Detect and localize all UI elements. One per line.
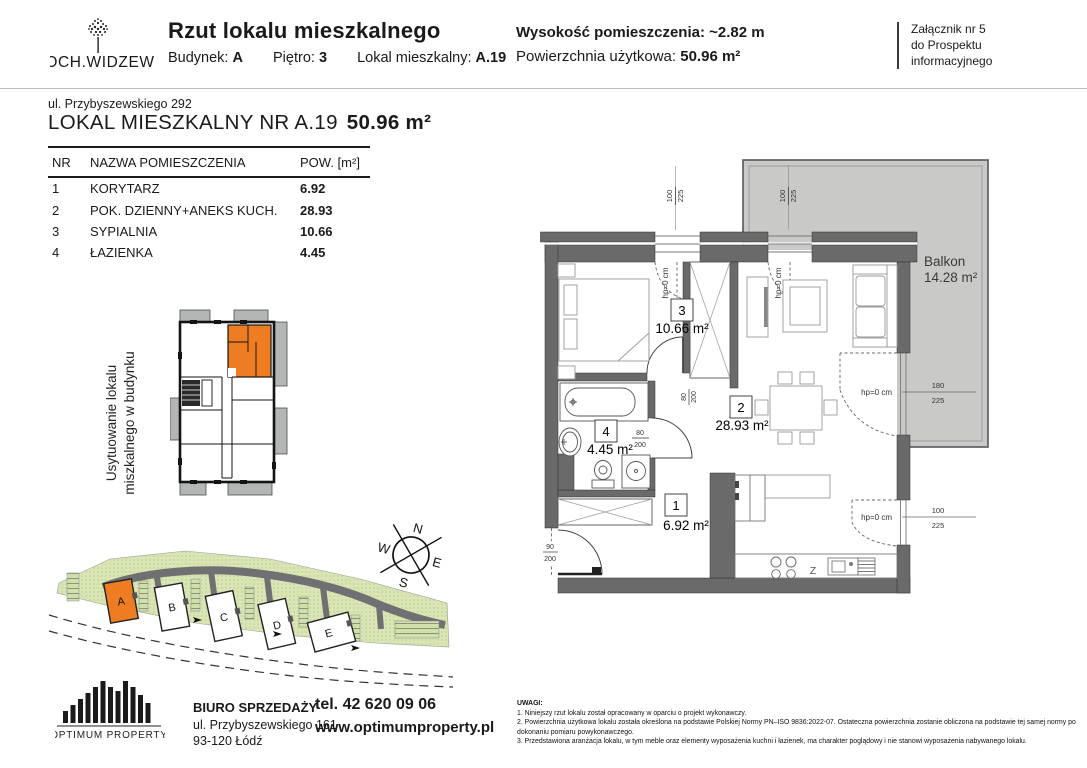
agency-brand: OPTIMUM PROPERTY [55, 730, 165, 741]
svg-text:100: 100 [932, 506, 945, 515]
wardrobe-bedroom [690, 262, 730, 378]
svg-text:200: 200 [634, 442, 646, 449]
balcony-area: 14.28 m² [924, 270, 978, 285]
svg-text:225: 225 [932, 521, 945, 530]
room-3-area: 10.66 m² [655, 321, 709, 336]
note-item: 1. Niniejszy rzut lokalu został opracowa… [517, 709, 1079, 719]
unit-value: A.19 [476, 50, 507, 66]
room-3-number: 3 [678, 303, 685, 318]
room-4-number: 4 [602, 424, 609, 439]
table-row: 3 SYPIALNIA 10.66 [48, 221, 370, 242]
unit-label: Lokal mieszkalny: [357, 50, 471, 66]
table-row: 2 POK. DZIENNY+ANEKS KUCH. 28.93 [48, 199, 370, 220]
agency-logo: OPTIMUM PROPERTY [55, 678, 165, 742]
svg-text:W: W [376, 539, 392, 557]
table-row: 1 KORYTARZ 6.92 [48, 178, 370, 199]
wardrobe-hall [558, 499, 652, 525]
notes-title: UWAGI: [517, 699, 1079, 709]
floor-value: 3 [319, 50, 327, 66]
table-header: NR NAZWA POMIESZCZENIA POW. [m²] [48, 146, 370, 178]
dim-window-right: 100 225 [932, 506, 945, 530]
unit-meta: Budynek: A Piętro: 3 Lokal mieszkalny: A… [168, 50, 506, 66]
notes-block: UWAGI: 1. Niniejszy rzut lokalu został o… [517, 699, 1079, 747]
hp-label: hp=0 cm [661, 267, 670, 298]
svg-text:200: 200 [691, 391, 698, 403]
page-title: Rzut lokalu mieszkalnego [168, 18, 441, 44]
svg-text:180: 180 [932, 381, 945, 390]
building-bars-icon [63, 681, 151, 723]
kitchen-sink-label: Z [810, 565, 817, 577]
svg-text:225: 225 [932, 396, 945, 405]
svg-text:200: 200 [544, 556, 556, 563]
svg-text:80: 80 [636, 430, 644, 437]
note-item: 3. Przedstawiona aranżacja lokalu, w tym… [517, 737, 1079, 747]
site-map: A B C D E [45, 523, 457, 691]
elevator [202, 380, 212, 406]
usable-area: Powierzchnia użytkowa: 50.96 m² [516, 48, 740, 65]
tree-icon [88, 18, 108, 53]
svg-text:100: 100 [778, 190, 787, 203]
hp-label: hp=0 cm [774, 267, 783, 298]
hp-label: hp=0 cm [861, 513, 892, 522]
rooms-table: NR NAZWA POMIESZCZENIA POW. [m²] 1 KORYT… [48, 146, 370, 264]
svg-text:E: E [431, 554, 444, 571]
room-2-area: 28.93 m² [715, 418, 769, 433]
room-4-area: 4.45 m² [587, 442, 633, 457]
document-page: OCH.WIDZEW Rzut lokalu mieszkalnego Budy… [0, 0, 1087, 768]
entry-door-handle [592, 567, 601, 575]
floor-plan: Z 3 10.66 m² 2 28.93 m² 4 4.45 m² 1 6.92… [540, 150, 1040, 620]
svg-text:90: 90 [546, 544, 554, 551]
svg-text:225: 225 [789, 190, 798, 203]
dim-window-top-1: 100 225 [665, 187, 685, 205]
building-value: A [233, 50, 243, 66]
attachment-note: Załącznik nr 5 do Prospektu informacyjne… [897, 22, 992, 69]
unit-title: LOKAL MIESZKALNY NR A.1950.96 m² [48, 111, 431, 135]
logo-text: OCH.WIDZEW [50, 54, 154, 71]
svg-text:S: S [397, 574, 410, 591]
room-2-number: 2 [737, 400, 744, 415]
window-right-frame [901, 500, 907, 545]
website-link[interactable]: www.optimumproperty.pl [315, 719, 494, 736]
balcony-name: Balkon [924, 254, 965, 269]
window-top-1 [655, 236, 700, 252]
svg-text:100: 100 [665, 190, 674, 203]
phone-number: tel. 42 620 09 06 [315, 696, 436, 714]
unit-door-notch [228, 368, 236, 377]
stairwell [182, 380, 200, 406]
room-1-area: 6.92 m² [663, 518, 709, 533]
location-diagram-label: Usytuowanie lokalu miszkalnego w budynku [103, 313, 141, 533]
hp-label: hp=0 cm [861, 388, 892, 397]
floor-label: Piętro: [273, 50, 315, 66]
street-address: ul. Przybyszewskiego 292 [48, 97, 192, 111]
dim-entry-door: 90 200 [540, 541, 561, 566]
header-divider [0, 88, 1087, 89]
room-1-number: 1 [672, 498, 679, 513]
svg-text:80: 80 [681, 393, 688, 401]
svg-text:225: 225 [676, 190, 685, 203]
building-location-diagram [170, 282, 292, 526]
developer-logo: OCH.WIDZEW [50, 13, 154, 75]
room-height: Wysokość pomieszczenia: ~2.82 m [516, 24, 765, 41]
building-label: Budynek: [168, 50, 228, 66]
table-row: 4 ŁAZIENKA 4.45 [48, 242, 370, 263]
note-item: 2. Powierzchnia użytkowa lokalu została … [517, 718, 1079, 737]
svg-text:N: N [412, 523, 425, 537]
